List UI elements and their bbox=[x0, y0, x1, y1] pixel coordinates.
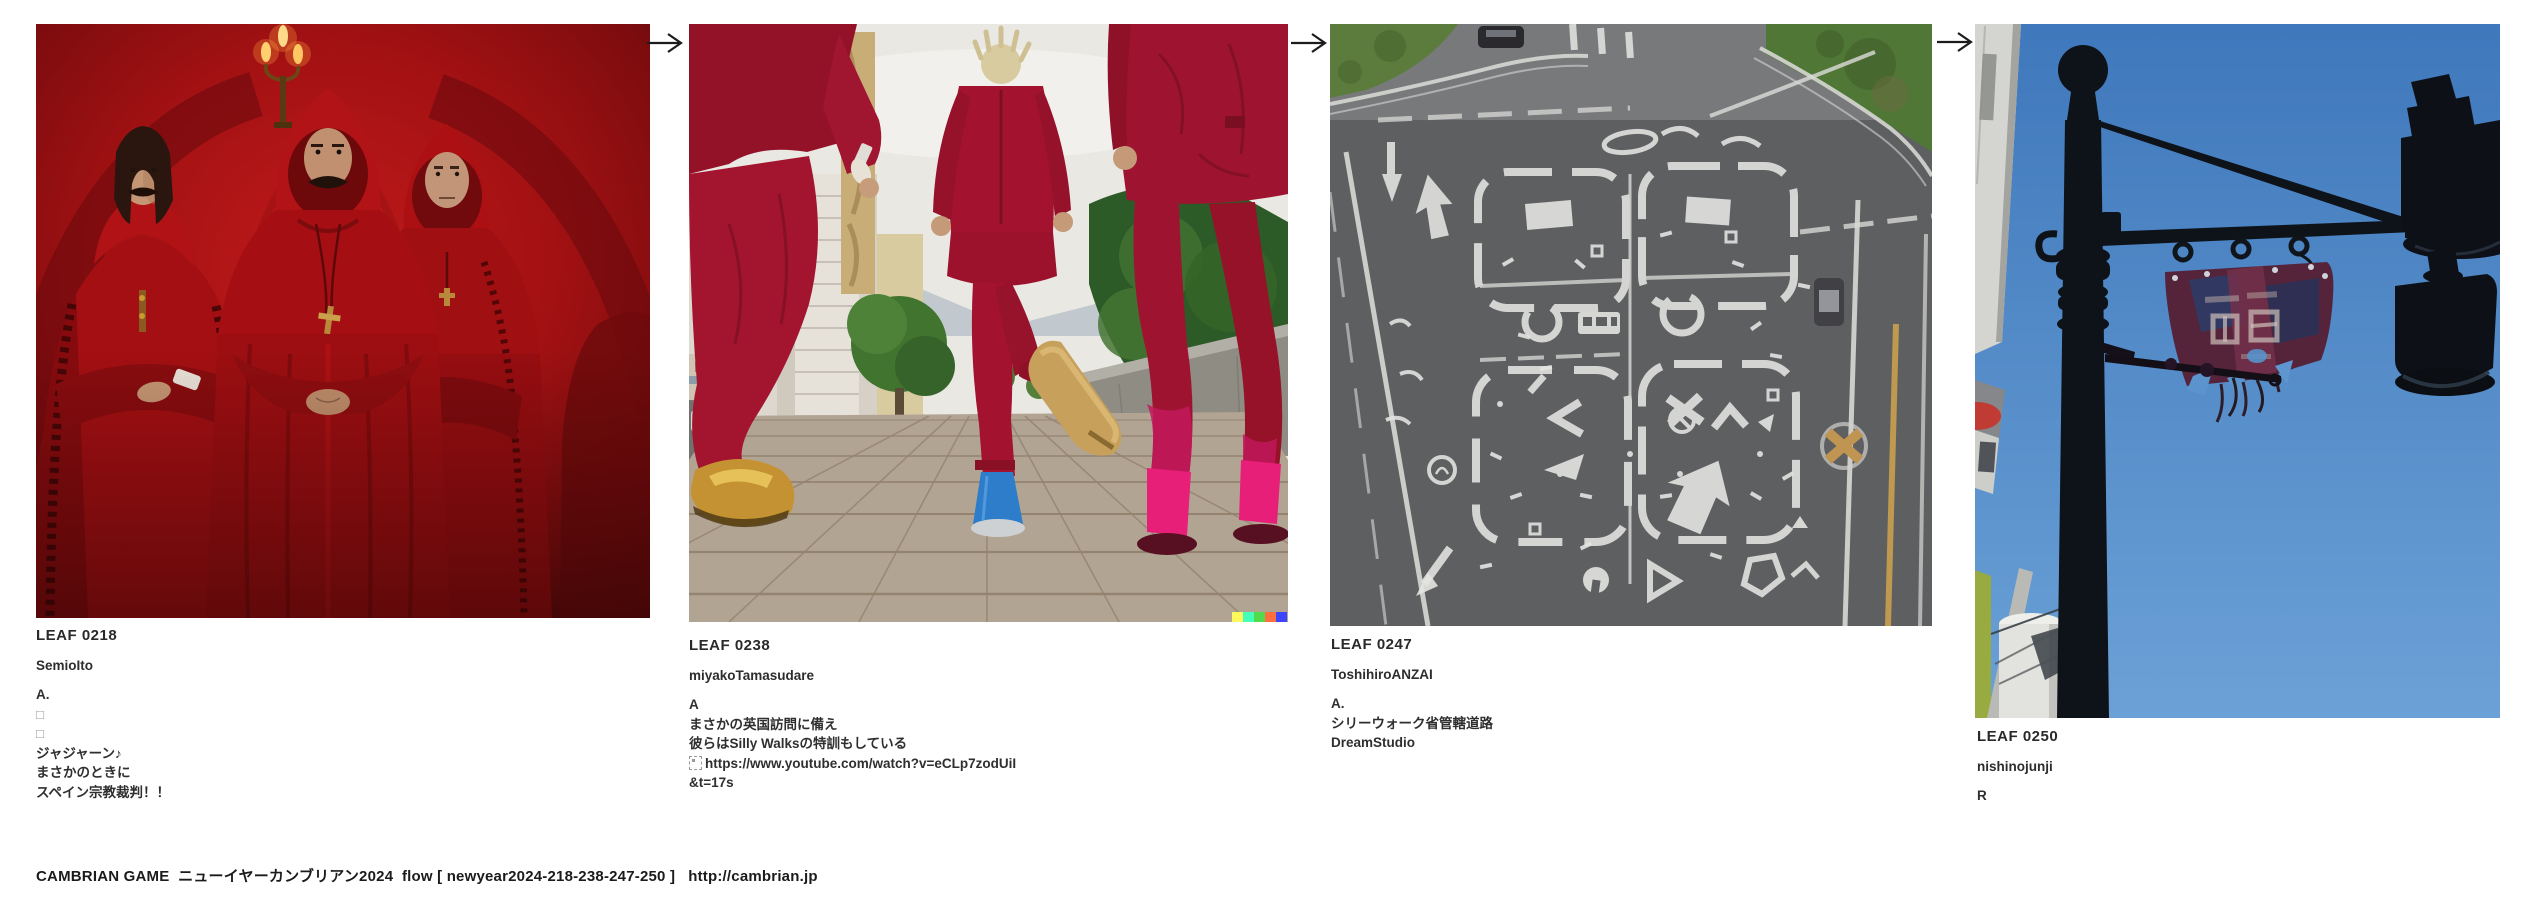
youtube-url-text: https://www.youtube.com/watch?v=eCLp7zod… bbox=[705, 756, 1016, 771]
caption-line: まさかのときに bbox=[36, 763, 170, 783]
caption-line: DreamStudio bbox=[1331, 733, 1493, 753]
flow-arrow-icon bbox=[1936, 30, 1978, 54]
footer-credit: CAMBRIAN GAME ニューイヤーカンブリアン2024 flow [ ne… bbox=[36, 865, 818, 886]
leaf-id: LEAF 0218 bbox=[36, 626, 170, 645]
leaf-id: LEAF 0250 bbox=[1977, 727, 2058, 746]
youtube-link[interactable]: https://www.youtube.com/watch?v=eCLp7zod… bbox=[689, 754, 1016, 774]
leaf-caption-4: LEAF 0250 nishinojunji R bbox=[1977, 727, 2058, 806]
caption-line: A bbox=[689, 695, 1016, 715]
caption-line: &t=17s bbox=[689, 773, 1016, 793]
broken-image-icon bbox=[689, 756, 702, 770]
leaf-image-3[interactable] bbox=[1330, 24, 1932, 626]
caption-line: A. bbox=[1331, 694, 1493, 714]
leaf-image-4[interactable] bbox=[1975, 24, 2500, 718]
caption-line: スペイン宗教裁判！！ bbox=[36, 783, 170, 803]
leaf-author: ToshihiroANZAI bbox=[1331, 665, 1493, 684]
leaf-caption-1: LEAF 0218 SemioIto A. □ □ ジャジャーン♪ まさかのとき… bbox=[36, 626, 170, 802]
leaf-image-2[interactable] bbox=[689, 24, 1288, 622]
caption-line: シリーウォーク省管轄道路 bbox=[1331, 714, 1493, 734]
silly-walks-photo bbox=[689, 24, 1288, 622]
leaf-id: LEAF 0238 bbox=[689, 636, 1016, 655]
road-markings-photo bbox=[1330, 24, 1932, 626]
image-generator-watermark bbox=[1232, 612, 1287, 622]
caption-line: ジャジャーン♪ bbox=[36, 744, 170, 764]
leaf-caption-3: LEAF 0247 ToshihiroANZAI A. シリーウォーク省管轄道路… bbox=[1331, 635, 1493, 753]
caption-line: R bbox=[1977, 786, 2058, 806]
leaf-id: LEAF 0247 bbox=[1331, 635, 1493, 654]
inquisitors-photo bbox=[36, 24, 650, 618]
leaf-author: SemioIto bbox=[36, 656, 170, 675]
flow-arrow-icon bbox=[1290, 31, 1332, 55]
leaf-author: miyakoTamasudare bbox=[689, 666, 1016, 685]
caption-line-tofu: □ bbox=[36, 724, 170, 744]
caption-line-tofu: □ bbox=[36, 705, 170, 725]
leaf-image-1[interactable] bbox=[36, 24, 650, 618]
caption-line: A. bbox=[36, 685, 170, 705]
leaf-author: nishinojunji bbox=[1977, 757, 2058, 776]
caption-line: まさかの英国訪問に備え bbox=[689, 715, 1016, 735]
lamp-post-photo bbox=[1975, 24, 2500, 718]
caption-line: 彼らはSilly Walksの特訓もしている bbox=[689, 734, 1016, 754]
flow-arrow-icon bbox=[646, 31, 688, 55]
leaf-caption-2: LEAF 0238 miyakoTamasudare A まさかの英国訪問に備え… bbox=[689, 636, 1016, 793]
